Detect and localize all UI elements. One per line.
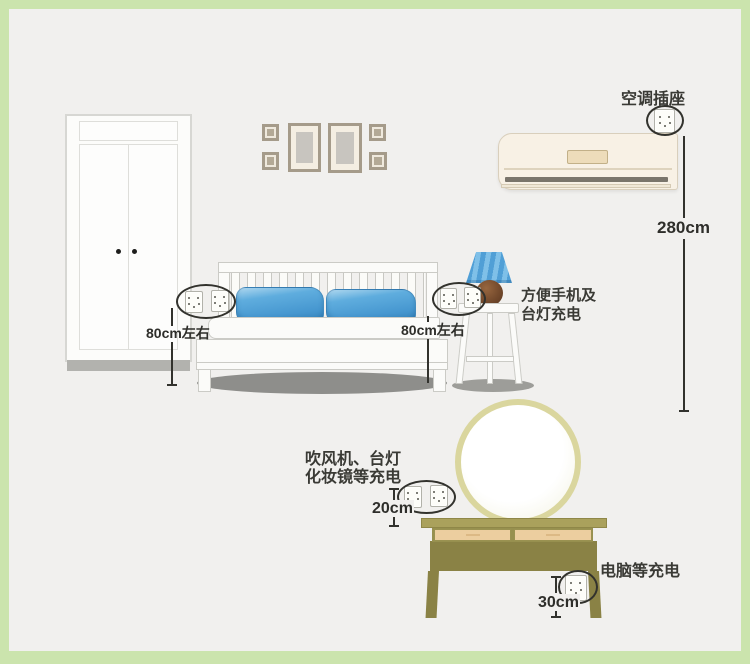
measure-label-vanity: 20cm xyxy=(371,500,414,518)
measure-line-vanity xyxy=(393,490,395,500)
desk-socket-label: 电脑等充电 xyxy=(600,563,680,581)
table-apron xyxy=(430,541,597,571)
socket-circle-icon xyxy=(176,284,236,319)
photo-frame-small xyxy=(369,152,387,170)
nightstand-socket-label-line1: 方便手机及 xyxy=(521,288,596,305)
measure-line-ac xyxy=(683,239,685,410)
door-handle-icon xyxy=(132,249,137,254)
measure-label-bed: 80cm左右 xyxy=(401,323,465,338)
measure-cap xyxy=(551,616,561,618)
stool-leg xyxy=(487,313,493,384)
bedroom-socket-diagram: 80cm左右 80cm左右 方便手机及 台灯充电 空调插座 280cm 吹风机、… xyxy=(0,0,750,664)
ac-vent-slot xyxy=(505,177,668,182)
bed-bottom-rail xyxy=(196,362,448,370)
measure-label-ac: 280cm xyxy=(655,219,712,238)
measure-line-bed xyxy=(427,339,429,383)
bed-base xyxy=(196,339,448,364)
ac-divider xyxy=(504,168,672,170)
vanity-socket-label-line1: 吹风机、台灯 xyxy=(305,451,401,469)
socket-circle-icon xyxy=(646,105,684,136)
stool-crossbar xyxy=(466,356,514,362)
socket-circle-icon xyxy=(432,282,486,316)
ac-socket-label: 空调插座 xyxy=(621,91,685,109)
measure-line-vanity xyxy=(393,517,395,525)
measure-cap xyxy=(389,525,399,527)
photo-frame-large xyxy=(288,123,321,172)
photo-frame-small xyxy=(262,152,279,170)
ac-display xyxy=(567,150,608,164)
nightstand-socket-label-line2: 台灯充电 xyxy=(521,307,581,324)
bed-leg-right xyxy=(433,369,446,392)
drawer xyxy=(434,529,511,541)
ac-vent-lip xyxy=(501,184,671,188)
measure-label-desk: 30cm xyxy=(537,594,580,612)
measure-line-ac xyxy=(683,136,685,218)
photo-frame-small xyxy=(262,124,279,141)
photo-frame-large xyxy=(328,123,362,173)
vanity-socket-label-line2: 化妆镜等充电 xyxy=(305,469,401,487)
photo-frame-small xyxy=(369,124,386,141)
table-top xyxy=(421,518,607,528)
drawer xyxy=(514,529,592,541)
measure-line-wardrobe xyxy=(171,342,173,384)
wardrobe-transom xyxy=(79,121,178,141)
measure-line-desk xyxy=(555,578,557,593)
headboard-rail xyxy=(218,262,438,273)
door-handle-icon xyxy=(116,249,121,254)
measure-label-wardrobe: 80cm左右 xyxy=(146,326,210,341)
round-mirror xyxy=(455,399,581,525)
measure-cap xyxy=(679,410,689,412)
bed-shadow xyxy=(197,372,447,394)
bed-leg-left xyxy=(198,369,211,392)
measure-cap xyxy=(167,384,177,386)
wardrobe-door-left xyxy=(79,144,129,350)
measure-line-wardrobe xyxy=(171,308,173,326)
